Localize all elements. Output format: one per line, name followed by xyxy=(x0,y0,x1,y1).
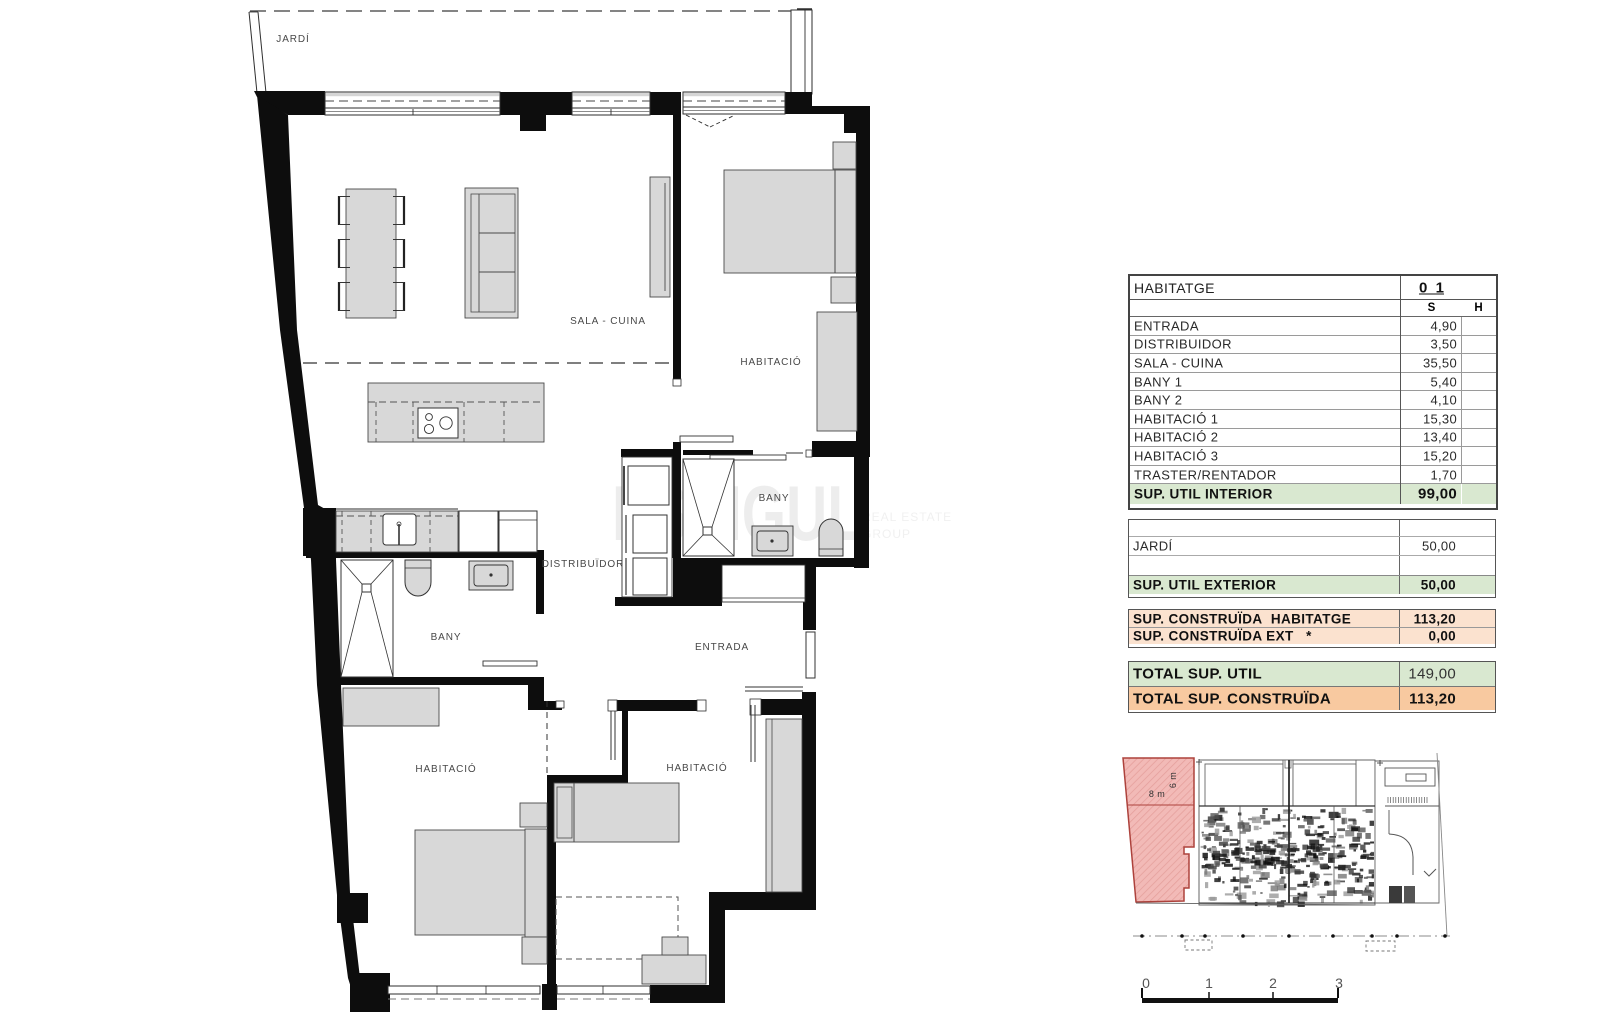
svg-text:6 m: 6 m xyxy=(1168,772,1178,788)
svg-text:JARDÍ: JARDÍ xyxy=(276,32,309,45)
svg-text:3: 3 xyxy=(1335,975,1343,991)
svg-text:1: 1 xyxy=(1205,975,1213,991)
svg-text:BANY: BANY xyxy=(431,632,462,643)
svg-text:2: 2 xyxy=(1269,975,1277,991)
svg-text:BANY: BANY xyxy=(759,493,790,504)
svg-text:0: 0 xyxy=(1142,975,1150,991)
svg-text:HABITACIÓ: HABITACIÓ xyxy=(666,761,727,774)
svg-text:ENTRADA: ENTRADA xyxy=(695,642,749,653)
svg-text:HABITACIÓ: HABITACIÓ xyxy=(740,355,801,368)
svg-text:SALA - CUINA: SALA - CUINA xyxy=(570,316,646,327)
svg-text:HABITACIÓ: HABITACIÓ xyxy=(415,762,476,775)
svg-text:GROUP: GROUP xyxy=(862,527,911,541)
svg-text:REAL ESTATE: REAL ESTATE xyxy=(862,510,952,524)
svg-text:8 m: 8 m xyxy=(1149,789,1165,799)
svg-text:DISTRIBUÏDOR: DISTRIBUÏDOR xyxy=(542,558,624,570)
